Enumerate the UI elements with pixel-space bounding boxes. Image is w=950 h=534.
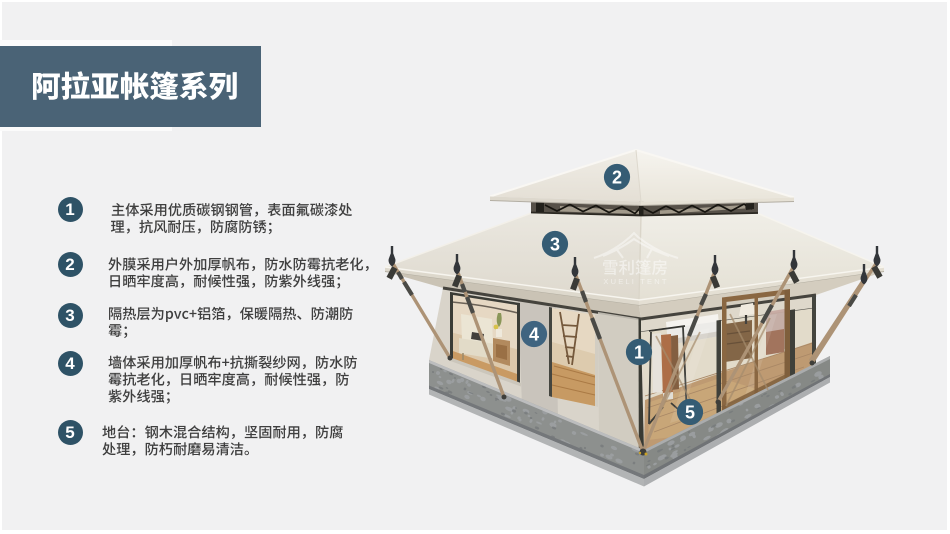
svg-text:5: 5 xyxy=(685,403,695,423)
svg-text:XUELI TENT: XUELI TENT xyxy=(603,277,668,286)
svg-text:3: 3 xyxy=(550,235,560,255)
svg-text:2: 2 xyxy=(612,168,622,188)
svg-text:1: 1 xyxy=(634,343,644,363)
svg-text:4: 4 xyxy=(529,325,539,345)
